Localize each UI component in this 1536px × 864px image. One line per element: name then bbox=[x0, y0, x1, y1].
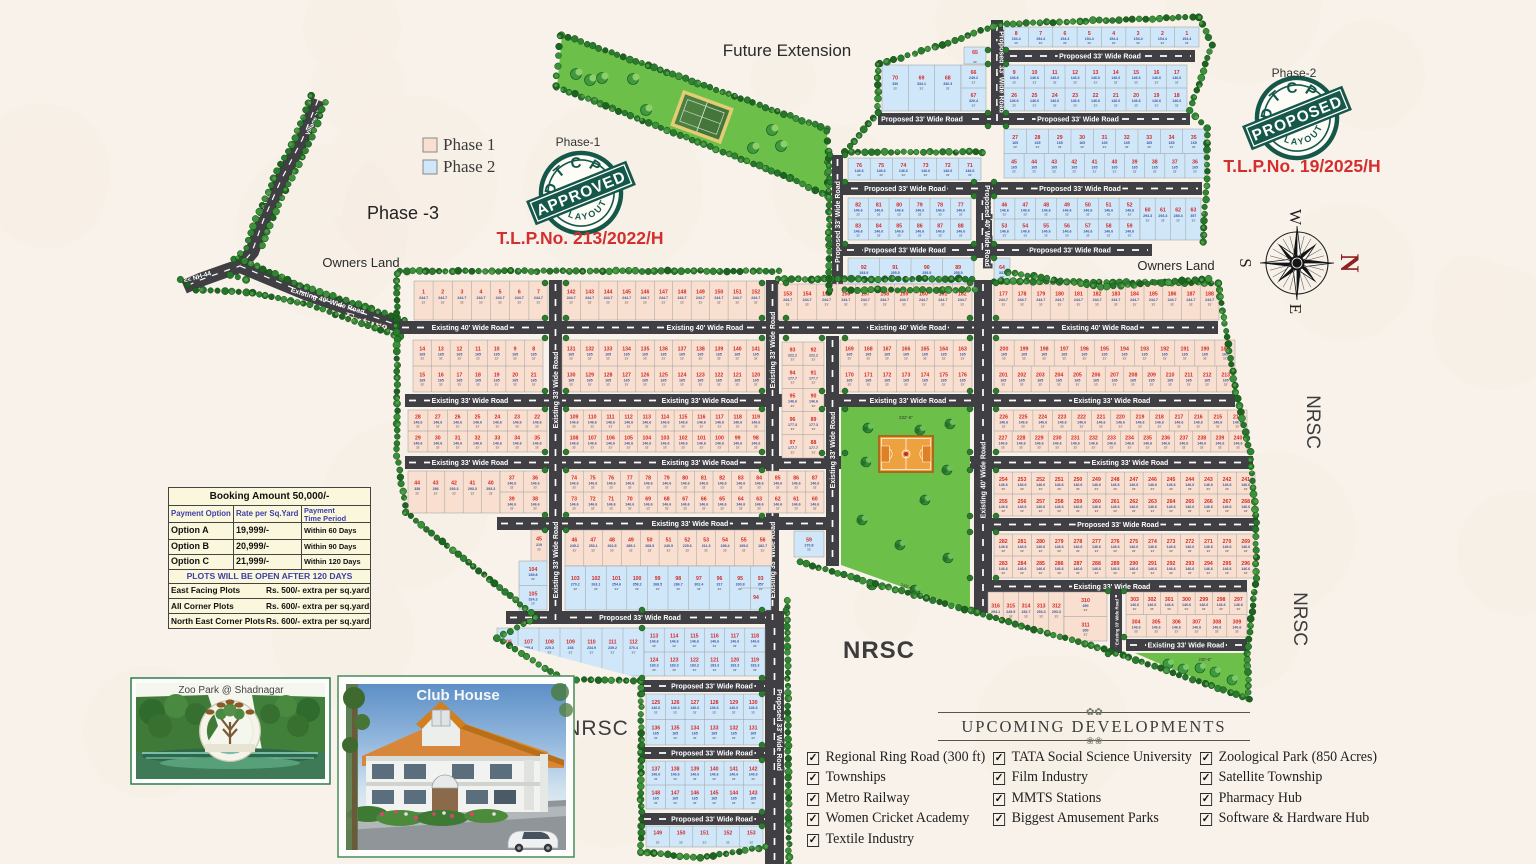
svg-text:33': 33' bbox=[683, 507, 687, 511]
svg-text:108: 108 bbox=[545, 639, 554, 645]
svg-text:33': 33' bbox=[1038, 383, 1042, 387]
svg-text:33': 33' bbox=[1044, 213, 1048, 217]
svg-text:33': 33' bbox=[692, 668, 696, 672]
svg-text:33': 33' bbox=[1057, 383, 1061, 387]
svg-text:33': 33' bbox=[635, 587, 639, 591]
svg-text:33': 33' bbox=[1175, 80, 1179, 84]
svg-text:33': 33' bbox=[656, 841, 660, 845]
svg-text:33': 33' bbox=[1167, 607, 1171, 611]
svg-text:33': 33' bbox=[1039, 615, 1043, 619]
svg-text:Owners Land: Owners Land bbox=[322, 255, 399, 270]
svg-text:33': 33' bbox=[1206, 549, 1210, 553]
svg-text:33': 33' bbox=[1151, 509, 1155, 513]
svg-text:33': 33' bbox=[456, 425, 460, 429]
svg-text:147: 147 bbox=[659, 290, 668, 296]
svg-text:33': 33' bbox=[1151, 487, 1155, 491]
svg-text:4: 4 bbox=[480, 290, 483, 296]
svg-text:33': 33' bbox=[1157, 425, 1161, 429]
svg-text:33': 33' bbox=[1001, 303, 1005, 307]
svg-text:33': 33' bbox=[1094, 103, 1098, 107]
svg-text:33': 33' bbox=[1208, 303, 1212, 307]
svg-text:33': 33' bbox=[961, 383, 965, 387]
svg-text:Existing 33' Wide Road: Existing 33' Wide Road bbox=[1074, 584, 1151, 591]
svg-text:33': 33' bbox=[665, 507, 669, 511]
svg-text:33': 33' bbox=[794, 507, 798, 511]
svg-text:33': 33' bbox=[1039, 549, 1043, 553]
svg-text:33': 33' bbox=[676, 587, 680, 591]
svg-text:244.7: 244.7 bbox=[1111, 298, 1120, 302]
svg-text:33': 33' bbox=[733, 668, 737, 672]
svg-text:33': 33' bbox=[572, 425, 576, 429]
svg-text:33': 33' bbox=[609, 425, 613, 429]
svg-text:33': 33' bbox=[1188, 549, 1192, 553]
svg-text:270.2: 270.2 bbox=[571, 583, 580, 587]
svg-text:33': 33' bbox=[1147, 145, 1151, 149]
svg-text:7: 7 bbox=[537, 290, 540, 296]
svg-text:33': 33' bbox=[572, 507, 576, 511]
svg-text:33': 33' bbox=[1188, 509, 1192, 513]
svg-text:Future Extension: Future Extension bbox=[723, 41, 852, 60]
svg-text:33': 33' bbox=[812, 450, 816, 454]
svg-text:293.3: 293.3 bbox=[450, 487, 459, 491]
svg-text:33': 33' bbox=[720, 507, 724, 511]
svg-text:33': 33' bbox=[643, 357, 647, 361]
svg-text:33': 33' bbox=[972, 103, 976, 107]
svg-text:33': 33' bbox=[420, 357, 424, 361]
svg-text:33': 33' bbox=[680, 383, 684, 387]
svg-text:33': 33' bbox=[693, 736, 697, 740]
svg-text:33': 33' bbox=[754, 357, 758, 361]
svg-text:198.4: 198.4 bbox=[721, 544, 730, 548]
svg-text:33': 33' bbox=[946, 87, 950, 91]
svg-text:33': 33' bbox=[973, 60, 977, 64]
svg-text:33': 33' bbox=[885, 357, 889, 361]
svg-text:NRSC: NRSC bbox=[565, 717, 629, 740]
svg-text:33': 33' bbox=[893, 87, 897, 91]
svg-text:33': 33' bbox=[1053, 103, 1057, 107]
svg-text:33': 33' bbox=[1020, 383, 1024, 387]
svg-text:294.1: 294.1 bbox=[991, 610, 1000, 614]
svg-text:101: 101 bbox=[612, 576, 621, 582]
svg-text:244.7: 244.7 bbox=[1074, 298, 1083, 302]
svg-text:33': 33' bbox=[457, 383, 461, 387]
svg-text:33': 33' bbox=[535, 425, 539, 429]
svg-text:33': 33' bbox=[573, 587, 577, 591]
svg-text:33': 33' bbox=[1223, 357, 1227, 361]
svg-text:33': 33' bbox=[533, 507, 537, 511]
svg-text:33': 33' bbox=[791, 450, 795, 454]
svg-text:33': 33' bbox=[1183, 357, 1187, 361]
svg-text:33': 33' bbox=[1037, 446, 1041, 450]
svg-text:33': 33' bbox=[495, 357, 499, 361]
svg-text:244.7: 244.7 bbox=[919, 298, 928, 302]
svg-text:33': 33' bbox=[1169, 571, 1173, 575]
svg-text:33': 33' bbox=[946, 173, 950, 177]
svg-text:146: 146 bbox=[641, 290, 650, 296]
svg-text:187: 187 bbox=[1187, 292, 1196, 298]
svg-text:33': 33' bbox=[1225, 487, 1229, 491]
svg-text:33': 33' bbox=[1084, 608, 1088, 612]
svg-text:33': 33' bbox=[1244, 549, 1248, 553]
svg-text:33': 33' bbox=[680, 357, 684, 361]
svg-text:143: 143 bbox=[585, 290, 594, 296]
svg-text:33': 33' bbox=[759, 587, 763, 591]
svg-text:33': 33' bbox=[776, 486, 780, 490]
svg-text:33': 33' bbox=[1189, 303, 1193, 307]
svg-text:33': 33' bbox=[1053, 80, 1057, 84]
svg-text:Proposed 33' Wide Road: Proposed 33' Wide Road bbox=[599, 615, 681, 622]
svg-text:33': 33' bbox=[1080, 425, 1084, 429]
svg-text:Proposed 33' Wide Road: Proposed 33' Wide Road bbox=[997, 31, 1004, 113]
svg-text:Existing 40' Wide Road: Existing 40' Wide Road bbox=[1062, 325, 1139, 332]
svg-text:33': 33' bbox=[628, 486, 632, 490]
svg-text:33': 33' bbox=[1202, 607, 1206, 611]
svg-text:33': 33' bbox=[942, 383, 946, 387]
svg-text:154: 154 bbox=[803, 292, 812, 298]
svg-text:225.3: 225.3 bbox=[545, 646, 554, 650]
svg-text:244.7: 244.7 bbox=[733, 296, 742, 300]
svg-text:33': 33' bbox=[1073, 446, 1077, 450]
svg-text:153: 153 bbox=[783, 292, 792, 298]
svg-text:244.7: 244.7 bbox=[438, 296, 447, 300]
svg-text:33': 33' bbox=[1065, 213, 1069, 217]
svg-text:33': 33' bbox=[1151, 571, 1155, 575]
svg-text:33': 33' bbox=[679, 841, 683, 845]
svg-text:244.7: 244.7 bbox=[1130, 298, 1139, 302]
svg-text:33': 33' bbox=[1174, 630, 1178, 634]
svg-text:33': 33' bbox=[713, 668, 717, 672]
svg-text:293.3: 293.3 bbox=[1052, 610, 1061, 614]
svg-text:33': 33' bbox=[591, 507, 595, 511]
svg-text:142: 142 bbox=[567, 290, 576, 296]
svg-text:33': 33' bbox=[1065, 234, 1069, 238]
svg-text:33': 33' bbox=[735, 357, 739, 361]
svg-text:33': 33' bbox=[495, 446, 499, 450]
svg-text:33': 33' bbox=[452, 491, 456, 495]
svg-text:33': 33' bbox=[1023, 213, 1027, 217]
svg-text:54: 54 bbox=[722, 538, 728, 544]
svg-text:33': 33' bbox=[495, 383, 499, 387]
svg-text:33': 33' bbox=[1039, 41, 1043, 45]
svg-text:149: 149 bbox=[653, 830, 662, 836]
svg-text:238: 238 bbox=[568, 646, 574, 650]
svg-text:33': 33' bbox=[1154, 630, 1158, 634]
svg-text:33': 33' bbox=[959, 234, 963, 238]
svg-text:33': 33' bbox=[1185, 607, 1189, 611]
svg-text:Proposed 33' Wide Road: Proposed 33' Wide Road bbox=[1037, 116, 1119, 123]
svg-text:375'-4": 375'-4" bbox=[974, 463, 979, 476]
svg-text:33': 33' bbox=[1012, 170, 1016, 174]
svg-text:33': 33' bbox=[699, 425, 703, 429]
svg-text:33': 33' bbox=[1057, 487, 1061, 491]
svg-text:33': 33' bbox=[609, 486, 613, 490]
svg-text:313: 313 bbox=[1037, 604, 1046, 610]
svg-text:293.3: 293.3 bbox=[1143, 214, 1152, 218]
svg-text:33': 33' bbox=[643, 301, 647, 305]
svg-text:33': 33' bbox=[1173, 170, 1177, 174]
svg-text:181: 181 bbox=[1074, 292, 1083, 298]
svg-text:268.5: 268.5 bbox=[653, 583, 662, 587]
svg-text:33': 33' bbox=[536, 301, 540, 305]
svg-text:33': 33' bbox=[753, 668, 757, 672]
svg-text:33': 33' bbox=[517, 301, 521, 305]
svg-text:244.7: 244.7 bbox=[1018, 298, 1027, 302]
svg-text:302.4: 302.4 bbox=[694, 583, 703, 587]
svg-text:33': 33' bbox=[652, 668, 656, 672]
svg-text:33': 33' bbox=[662, 383, 666, 387]
svg-text:33': 33' bbox=[1020, 549, 1024, 553]
svg-text:330: 330 bbox=[892, 82, 898, 86]
svg-text:254.6: 254.6 bbox=[612, 583, 621, 587]
svg-text:180: 180 bbox=[1055, 292, 1064, 298]
svg-text:33': 33' bbox=[739, 507, 743, 511]
svg-text:33': 33' bbox=[1225, 509, 1229, 513]
svg-text:33': 33' bbox=[1001, 487, 1005, 491]
svg-text:244.7: 244.7 bbox=[534, 296, 543, 300]
svg-text:33': 33' bbox=[1039, 509, 1043, 513]
svg-text:195.6: 195.6 bbox=[739, 544, 748, 548]
svg-text:33': 33' bbox=[646, 486, 650, 490]
svg-text:33': 33' bbox=[754, 301, 758, 305]
svg-text:33': 33' bbox=[628, 507, 632, 511]
svg-text:282.7: 282.7 bbox=[1022, 610, 1031, 614]
svg-text:33': 33' bbox=[1150, 607, 1154, 611]
svg-text:49: 49 bbox=[628, 538, 634, 544]
svg-text:33': 33' bbox=[1039, 571, 1043, 575]
svg-text:33': 33' bbox=[941, 303, 945, 307]
svg-text:41: 41 bbox=[470, 480, 476, 486]
svg-text:244.7: 244.7 bbox=[1205, 298, 1214, 302]
svg-text:33': 33' bbox=[1169, 487, 1173, 491]
svg-text:33': 33' bbox=[476, 383, 480, 387]
svg-text:33': 33' bbox=[513, 383, 517, 387]
svg-text:33': 33' bbox=[923, 383, 927, 387]
svg-text:3: 3 bbox=[460, 290, 463, 296]
svg-text:33': 33' bbox=[847, 383, 851, 387]
svg-text:33': 33' bbox=[1128, 234, 1132, 238]
svg-text:33': 33' bbox=[572, 446, 576, 450]
svg-text:33': 33' bbox=[629, 549, 633, 553]
svg-text:33': 33' bbox=[1114, 103, 1118, 107]
svg-text:33': 33' bbox=[844, 303, 848, 307]
svg-text:33': 33' bbox=[1002, 234, 1006, 238]
svg-text:111: 111 bbox=[608, 639, 616, 645]
svg-text:33': 33' bbox=[1075, 383, 1079, 387]
svg-text:Existing 33' Wide Road: Existing 33' Wide Road bbox=[870, 398, 947, 405]
svg-text:33': 33' bbox=[591, 486, 595, 490]
svg-text:293.3: 293.3 bbox=[486, 487, 495, 491]
svg-text:33': 33' bbox=[712, 710, 716, 714]
svg-text:Zoo Park @ Shadnagar: Zoo Park @ Shadnagar bbox=[178, 685, 284, 696]
svg-text:33': 33' bbox=[681, 425, 685, 429]
svg-text:244.7: 244.7 bbox=[678, 296, 687, 300]
svg-text:244.7: 244.7 bbox=[585, 296, 594, 300]
svg-text:33': 33' bbox=[572, 486, 576, 490]
svg-text:33': 33' bbox=[1014, 41, 1018, 45]
svg-text:33': 33' bbox=[693, 710, 697, 714]
svg-text:33': 33' bbox=[1058, 145, 1062, 149]
svg-text:33': 33' bbox=[702, 486, 706, 490]
svg-text:33': 33' bbox=[918, 213, 922, 217]
svg-text:185: 185 bbox=[1149, 292, 1158, 298]
svg-text:33': 33' bbox=[751, 801, 755, 805]
svg-text:107: 107 bbox=[524, 639, 533, 645]
svg-text:33': 33' bbox=[723, 549, 727, 553]
svg-text:317: 317 bbox=[717, 583, 723, 587]
svg-text:33': 33' bbox=[735, 383, 739, 387]
svg-text:50: 50 bbox=[647, 538, 653, 544]
svg-text:97: 97 bbox=[696, 576, 702, 582]
svg-text:33': 33' bbox=[736, 446, 740, 450]
svg-text:33': 33' bbox=[1134, 630, 1138, 634]
svg-text:33': 33' bbox=[591, 549, 595, 553]
svg-text:293.3: 293.3 bbox=[1158, 214, 1167, 218]
svg-text:33': 33' bbox=[1193, 170, 1197, 174]
svg-text:186: 186 bbox=[1168, 292, 1177, 298]
svg-text:33': 33' bbox=[972, 80, 976, 84]
svg-text:33': 33' bbox=[1095, 549, 1099, 553]
svg-text:33': 33' bbox=[1076, 509, 1080, 513]
svg-text:S: S bbox=[1236, 258, 1255, 267]
svg-text:33': 33' bbox=[863, 303, 867, 307]
svg-text:33': 33' bbox=[531, 602, 535, 606]
svg-text:33': 33' bbox=[645, 425, 649, 429]
svg-text:33': 33' bbox=[1095, 571, 1099, 575]
svg-text:Proposed 33' Wide Road: Proposed 33' Wide Road bbox=[1029, 247, 1111, 254]
svg-text:33': 33' bbox=[606, 301, 610, 305]
svg-text:244.7: 244.7 bbox=[659, 296, 668, 300]
svg-text:33': 33' bbox=[1114, 80, 1118, 84]
svg-text:33': 33' bbox=[625, 301, 629, 305]
svg-text:33': 33' bbox=[632, 650, 636, 654]
svg-text:33': 33' bbox=[680, 301, 684, 305]
svg-text:245.2: 245.2 bbox=[570, 544, 579, 548]
svg-text:33': 33' bbox=[918, 234, 922, 238]
svg-text:33': 33' bbox=[751, 777, 755, 781]
svg-text:33': 33' bbox=[1155, 80, 1159, 84]
svg-text:112: 112 bbox=[629, 639, 637, 645]
svg-text:33': 33' bbox=[1060, 425, 1064, 429]
svg-text:330.3: 330.3 bbox=[943, 82, 952, 86]
svg-text:33': 33' bbox=[761, 549, 765, 553]
svg-text:33': 33' bbox=[879, 173, 883, 177]
svg-text:33': 33' bbox=[609, 446, 613, 450]
svg-text:244.7: 244.7 bbox=[714, 296, 723, 300]
svg-text:33': 33' bbox=[1036, 145, 1040, 149]
svg-text:33': 33' bbox=[416, 425, 420, 429]
svg-text:E: E bbox=[1286, 304, 1305, 314]
svg-text:145: 145 bbox=[622, 290, 631, 296]
svg-text:Proposed 33' Wide Road: Proposed 33' Wide Road bbox=[864, 186, 946, 193]
svg-text:33': 33' bbox=[1044, 234, 1048, 238]
svg-text:33': 33' bbox=[742, 549, 746, 553]
svg-text:33': 33' bbox=[698, 383, 702, 387]
svg-text:33': 33' bbox=[1110, 446, 1114, 450]
svg-text:33': 33' bbox=[1054, 615, 1058, 619]
svg-text:33': 33' bbox=[1113, 549, 1117, 553]
svg-text:Proposed 33' Wide Road: Proposed 33' Wide Road bbox=[1039, 186, 1121, 193]
svg-text:W: W bbox=[1286, 209, 1305, 226]
svg-text:33': 33' bbox=[825, 303, 829, 307]
svg-text:33': 33' bbox=[1235, 425, 1239, 429]
svg-text:33': 33' bbox=[753, 644, 757, 648]
svg-text:150: 150 bbox=[677, 830, 686, 836]
svg-text:33': 33' bbox=[548, 650, 552, 654]
svg-text:33': 33' bbox=[805, 303, 809, 307]
svg-text:33': 33' bbox=[757, 486, 761, 490]
svg-text:33': 33' bbox=[420, 383, 424, 387]
svg-text:315: 315 bbox=[1006, 604, 1015, 610]
svg-text:244.7: 244.7 bbox=[641, 296, 650, 300]
svg-text:33': 33' bbox=[1082, 357, 1086, 361]
svg-text:33': 33' bbox=[673, 777, 677, 781]
svg-text:33': 33' bbox=[1192, 145, 1196, 149]
svg-text:56: 56 bbox=[760, 538, 766, 544]
svg-text:33': 33' bbox=[1001, 446, 1005, 450]
svg-text:33': 33' bbox=[720, 486, 724, 490]
svg-text:33': 33' bbox=[732, 801, 736, 805]
svg-text:33': 33' bbox=[1168, 383, 1172, 387]
svg-text:33': 33' bbox=[901, 173, 905, 177]
svg-text:312: 312 bbox=[1052, 604, 1061, 610]
svg-text:245.5: 245.5 bbox=[1006, 610, 1015, 614]
svg-text:33': 33' bbox=[1107, 213, 1111, 217]
svg-text:33': 33' bbox=[1024, 615, 1028, 619]
svg-text:33': 33' bbox=[654, 801, 658, 805]
svg-text:Phase 1: Phase 1 bbox=[443, 135, 495, 154]
svg-text:33': 33' bbox=[1225, 571, 1229, 575]
svg-text:33': 33' bbox=[1206, 509, 1210, 513]
svg-text:33': 33' bbox=[673, 736, 677, 740]
svg-text:240.5: 240.5 bbox=[664, 544, 673, 548]
svg-text:33': 33' bbox=[1076, 549, 1080, 553]
svg-text:33': 33' bbox=[1020, 487, 1024, 491]
svg-text:93: 93 bbox=[758, 576, 764, 582]
svg-text:239.2: 239.2 bbox=[608, 646, 617, 650]
svg-text:33': 33' bbox=[1216, 425, 1220, 429]
svg-text:33': 33' bbox=[1134, 103, 1138, 107]
svg-text:Existing 33' Wide Road: Existing 33' Wide Road bbox=[662, 398, 739, 405]
svg-text:33': 33' bbox=[1205, 383, 1209, 387]
svg-text:33': 33' bbox=[1099, 425, 1103, 429]
svg-text:33': 33' bbox=[1236, 446, 1240, 450]
svg-text:33': 33' bbox=[1164, 446, 1168, 450]
svg-text:33': 33' bbox=[510, 486, 514, 490]
svg-text:Phase 2: Phase 2 bbox=[443, 157, 495, 176]
svg-text:33': 33' bbox=[732, 710, 736, 714]
svg-text:33': 33' bbox=[569, 357, 573, 361]
svg-text:33': 33' bbox=[692, 644, 696, 648]
svg-text:33': 33' bbox=[652, 644, 656, 648]
svg-text:225.6: 225.6 bbox=[683, 544, 692, 548]
svg-text:Existing 33' Wide Road: Existing 33' Wide Road bbox=[1074, 398, 1151, 405]
svg-text:33': 33' bbox=[1136, 41, 1140, 45]
svg-text:33': 33' bbox=[1188, 571, 1192, 575]
svg-text:153: 153 bbox=[747, 830, 756, 836]
svg-text:33': 33' bbox=[1150, 383, 1154, 387]
svg-text:33': 33' bbox=[856, 213, 860, 217]
svg-text:33': 33' bbox=[718, 446, 722, 450]
svg-text:33': 33' bbox=[757, 507, 761, 511]
svg-text:33': 33' bbox=[1013, 145, 1017, 149]
svg-text:Proposed 40' Wide Road: Proposed 40' Wide Road bbox=[983, 185, 990, 267]
svg-text:244.7: 244.7 bbox=[1168, 298, 1177, 302]
svg-text:33': 33' bbox=[1128, 446, 1132, 450]
svg-text:33': 33' bbox=[938, 234, 942, 238]
svg-text:244.7: 244.7 bbox=[880, 298, 889, 302]
svg-text:244.7: 244.7 bbox=[803, 298, 812, 302]
svg-text:151: 151 bbox=[733, 290, 742, 296]
